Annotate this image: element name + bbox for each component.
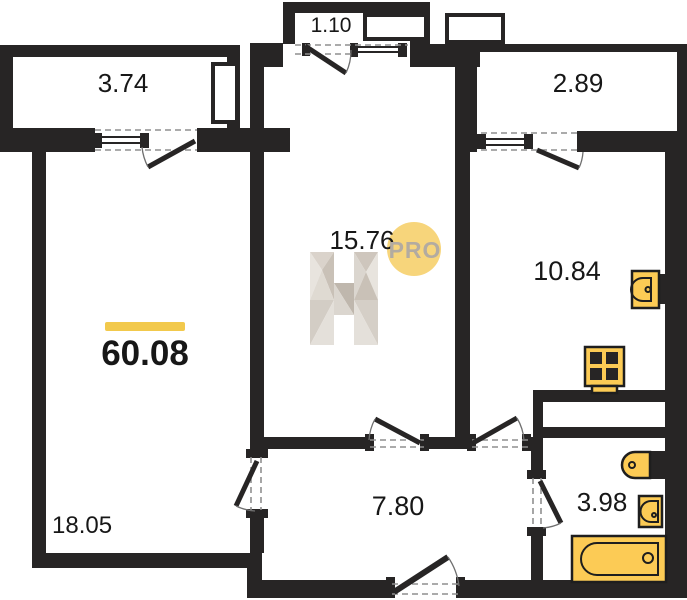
watermark-h-icon	[310, 252, 378, 345]
balcony-door-icon	[142, 141, 195, 167]
fixtures-layer	[572, 271, 669, 582]
balcony-window-box-icon	[365, 15, 426, 39]
bathtub-icon	[572, 536, 666, 582]
window-icon	[101, 137, 141, 143]
room-area-label-balcony-left: 3.74	[73, 70, 173, 97]
top-shaft-box-icon	[447, 15, 503, 42]
total-area-underline	[105, 322, 185, 331]
stove-icon	[585, 347, 624, 393]
bathroom-door-icon	[540, 481, 561, 528]
room-area-label-balcony-right: 2.89	[528, 70, 628, 97]
window-icon	[486, 139, 525, 145]
total-area-value: 60.08	[85, 334, 205, 374]
watermark-pro-badge: PRO	[388, 237, 442, 264]
opening-dashes-layer	[95, 45, 577, 594]
entrance-door-icon	[394, 557, 459, 592]
room-area-label-kitchen: 10.84	[517, 257, 617, 285]
room-area-label-balcony-center: 1.10	[295, 15, 367, 37]
window-icon	[356, 47, 399, 52]
washbasin-icon	[639, 496, 662, 527]
balcony-door-icon	[537, 150, 583, 168]
room-door-icon	[236, 461, 257, 511]
balcony-door-icon	[305, 46, 351, 73]
kitchen-sink-icon	[631, 271, 667, 308]
side-window-box-icon	[213, 64, 237, 122]
room-area-label-hallway: 7.80	[353, 492, 443, 520]
room-area-label-bedroom: 18.05	[52, 513, 142, 538]
toilet-icon	[622, 451, 669, 479]
floor-plan: 3.74 1.10 2.89 15.76 10.84 18.05 7.80 3.…	[0, 0, 687, 600]
room-area-label-bathroom: 3.98	[562, 489, 642, 516]
